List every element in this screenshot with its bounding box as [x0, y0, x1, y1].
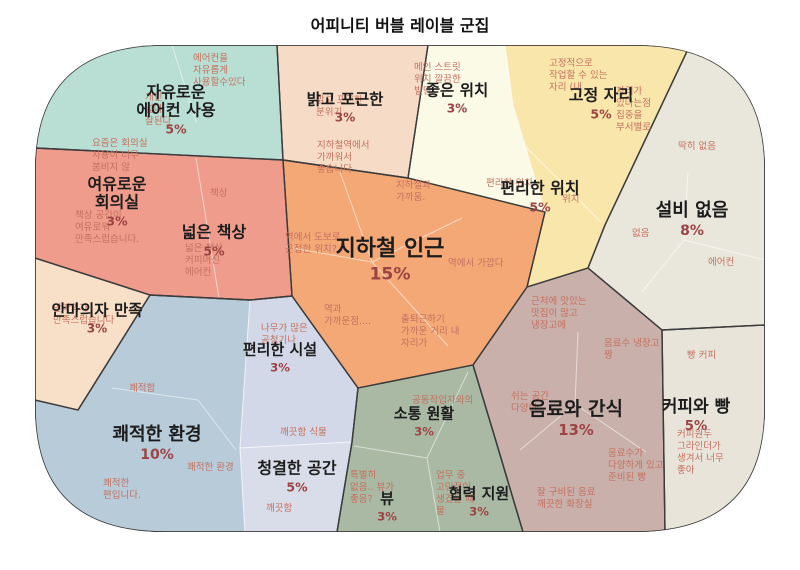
region-free-aircon — [35, 45, 283, 160]
page-title: 어피니티 버블 레이블 군집 — [0, 12, 800, 36]
affinity-cluster-map: 에어컨을 자유롭게 사용할수있다 개인 넓다 잘된다 밝고 포근한 분위기 메인… — [0, 0, 800, 570]
region-bright-cozy — [277, 45, 428, 178]
region-clean-space — [240, 442, 352, 532]
region-coffee-bread — [662, 325, 765, 532]
cluster-voronoi-canvas — [0, 0, 800, 570]
